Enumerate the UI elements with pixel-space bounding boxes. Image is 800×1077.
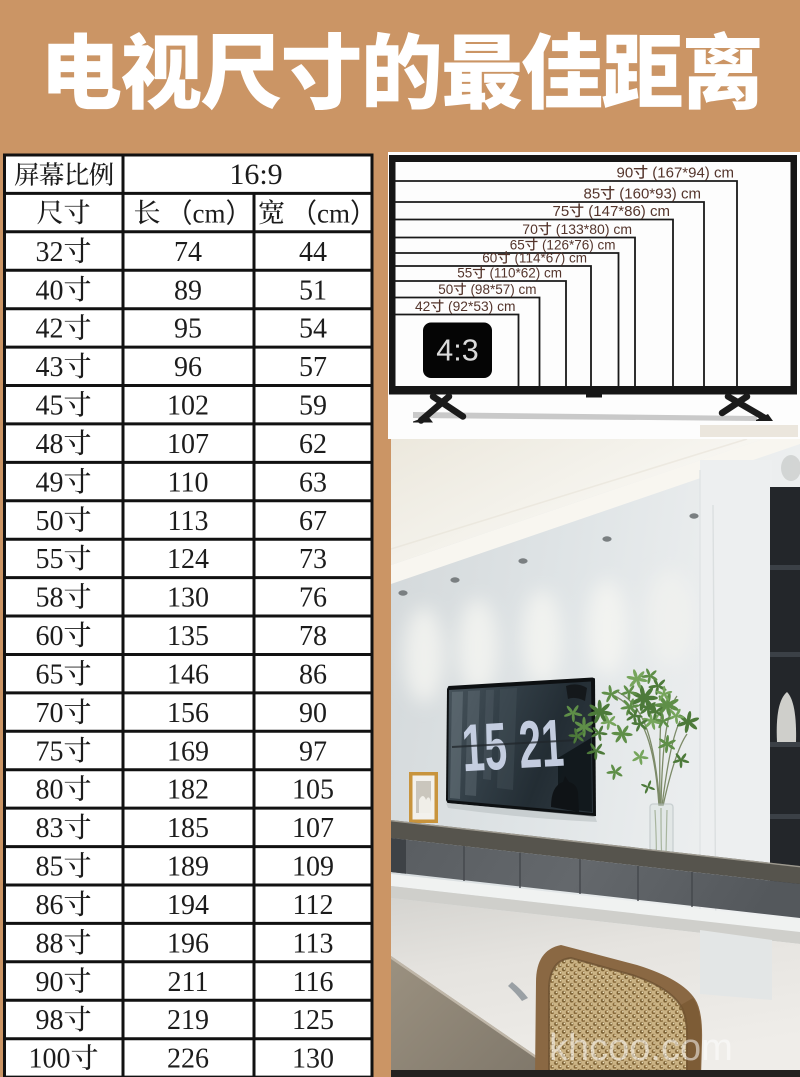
svg-text:95: 95 <box>174 314 202 345</box>
svg-text:97: 97 <box>299 736 327 767</box>
svg-text:70: 70 <box>522 221 538 237</box>
svg-text:(147*86) cm: (147*86) cm <box>584 203 670 220</box>
svg-text:75: 75 <box>553 203 570 220</box>
svg-text:130: 130 <box>292 1044 334 1075</box>
svg-text:90: 90 <box>617 165 634 182</box>
svg-text:156: 156 <box>167 698 209 729</box>
svg-text:90: 90 <box>36 967 64 998</box>
svg-text:185: 185 <box>167 813 209 844</box>
svg-text:43: 43 <box>36 352 64 383</box>
svg-text:(167*94) cm: (167*94) cm <box>648 165 734 182</box>
svg-text:(92*53) cm: (92*53) cm <box>444 299 515 314</box>
svg-text:49: 49 <box>36 467 64 498</box>
svg-text:75: 75 <box>36 736 64 767</box>
svg-text:102: 102 <box>167 391 209 422</box>
svg-text:105: 105 <box>292 775 334 806</box>
svg-text:219: 219 <box>167 1005 209 1036</box>
svg-text:(98*57) cm: (98*57) cm <box>467 282 537 297</box>
svg-text:59: 59 <box>299 391 327 422</box>
svg-text:(110*62) cm: (110*62) cm <box>486 266 562 281</box>
svg-text:110: 110 <box>168 467 209 498</box>
svg-text:86: 86 <box>36 890 64 921</box>
svg-text:40: 40 <box>36 275 64 306</box>
svg-text:169: 169 <box>167 736 209 767</box>
svg-text:32: 32 <box>36 237 64 268</box>
svg-text:(160*93) cm: (160*93) cm <box>615 186 701 203</box>
svg-text:194: 194 <box>167 890 209 921</box>
svg-text:(114*67) cm: (114*67) cm <box>511 251 587 266</box>
svg-text:khcoo.com: khcoo.com <box>549 1027 733 1069</box>
svg-text:116: 116 <box>293 967 334 998</box>
svg-text:63: 63 <box>299 467 327 498</box>
svg-text:107: 107 <box>167 429 209 460</box>
svg-text:(133*80) cm: (133*80) cm <box>552 221 632 237</box>
svg-text:54: 54 <box>299 314 327 345</box>
svg-text:48: 48 <box>36 429 64 460</box>
svg-text:88: 88 <box>36 928 64 959</box>
svg-text:74: 74 <box>174 237 202 268</box>
svg-text:112: 112 <box>293 890 334 921</box>
svg-text:85: 85 <box>36 852 64 883</box>
svg-text:（cm）: （cm） <box>166 199 253 229</box>
svg-text:70: 70 <box>36 698 64 729</box>
svg-text:196: 196 <box>167 928 209 959</box>
svg-text:100: 100 <box>29 1044 71 1075</box>
svg-text:73: 73 <box>299 544 327 575</box>
svg-text:146: 146 <box>167 660 209 691</box>
svg-text:67: 67 <box>299 506 327 537</box>
svg-text:50: 50 <box>36 506 64 537</box>
svg-text:107: 107 <box>292 813 334 844</box>
svg-text:78: 78 <box>299 621 327 652</box>
svg-text:113: 113 <box>168 506 209 537</box>
svg-text:55: 55 <box>457 266 472 281</box>
svg-text:86: 86 <box>299 660 327 691</box>
svg-text:80: 80 <box>36 775 64 806</box>
svg-text:89: 89 <box>174 275 202 306</box>
svg-text:85: 85 <box>584 186 601 203</box>
svg-text:51: 51 <box>299 275 327 306</box>
svg-text:44: 44 <box>299 237 327 268</box>
svg-text:42: 42 <box>415 299 430 314</box>
svg-text:60: 60 <box>36 621 64 652</box>
svg-text:57: 57 <box>299 352 327 383</box>
svg-text:124: 124 <box>167 544 209 575</box>
svg-text:45: 45 <box>36 391 64 422</box>
svg-text:109: 109 <box>292 852 334 883</box>
svg-text:90: 90 <box>299 698 327 729</box>
svg-text:125: 125 <box>292 1005 334 1036</box>
svg-text:55: 55 <box>36 544 64 575</box>
svg-text:65: 65 <box>36 660 64 691</box>
svg-text:16:9: 16:9 <box>229 158 282 191</box>
svg-text:42: 42 <box>36 314 64 345</box>
svg-text:189: 189 <box>167 852 209 883</box>
svg-text:98: 98 <box>36 1005 64 1036</box>
svg-text:113: 113 <box>293 928 334 959</box>
svg-text:211: 211 <box>168 967 209 998</box>
svg-text:60: 60 <box>482 251 497 266</box>
svg-text:4:3: 4:3 <box>436 334 478 368</box>
svg-text:58: 58 <box>36 583 64 614</box>
svg-text:182: 182 <box>167 775 209 806</box>
svg-text:96: 96 <box>174 352 202 383</box>
svg-text:135: 135 <box>167 621 209 652</box>
svg-text:（cm）: （cm） <box>290 199 377 229</box>
svg-text:76: 76 <box>299 583 327 614</box>
svg-text:83: 83 <box>36 813 64 844</box>
svg-text:130: 130 <box>167 583 209 614</box>
svg-text:62: 62 <box>299 429 327 460</box>
svg-text:226: 226 <box>167 1044 209 1075</box>
svg-text:50: 50 <box>438 282 453 297</box>
